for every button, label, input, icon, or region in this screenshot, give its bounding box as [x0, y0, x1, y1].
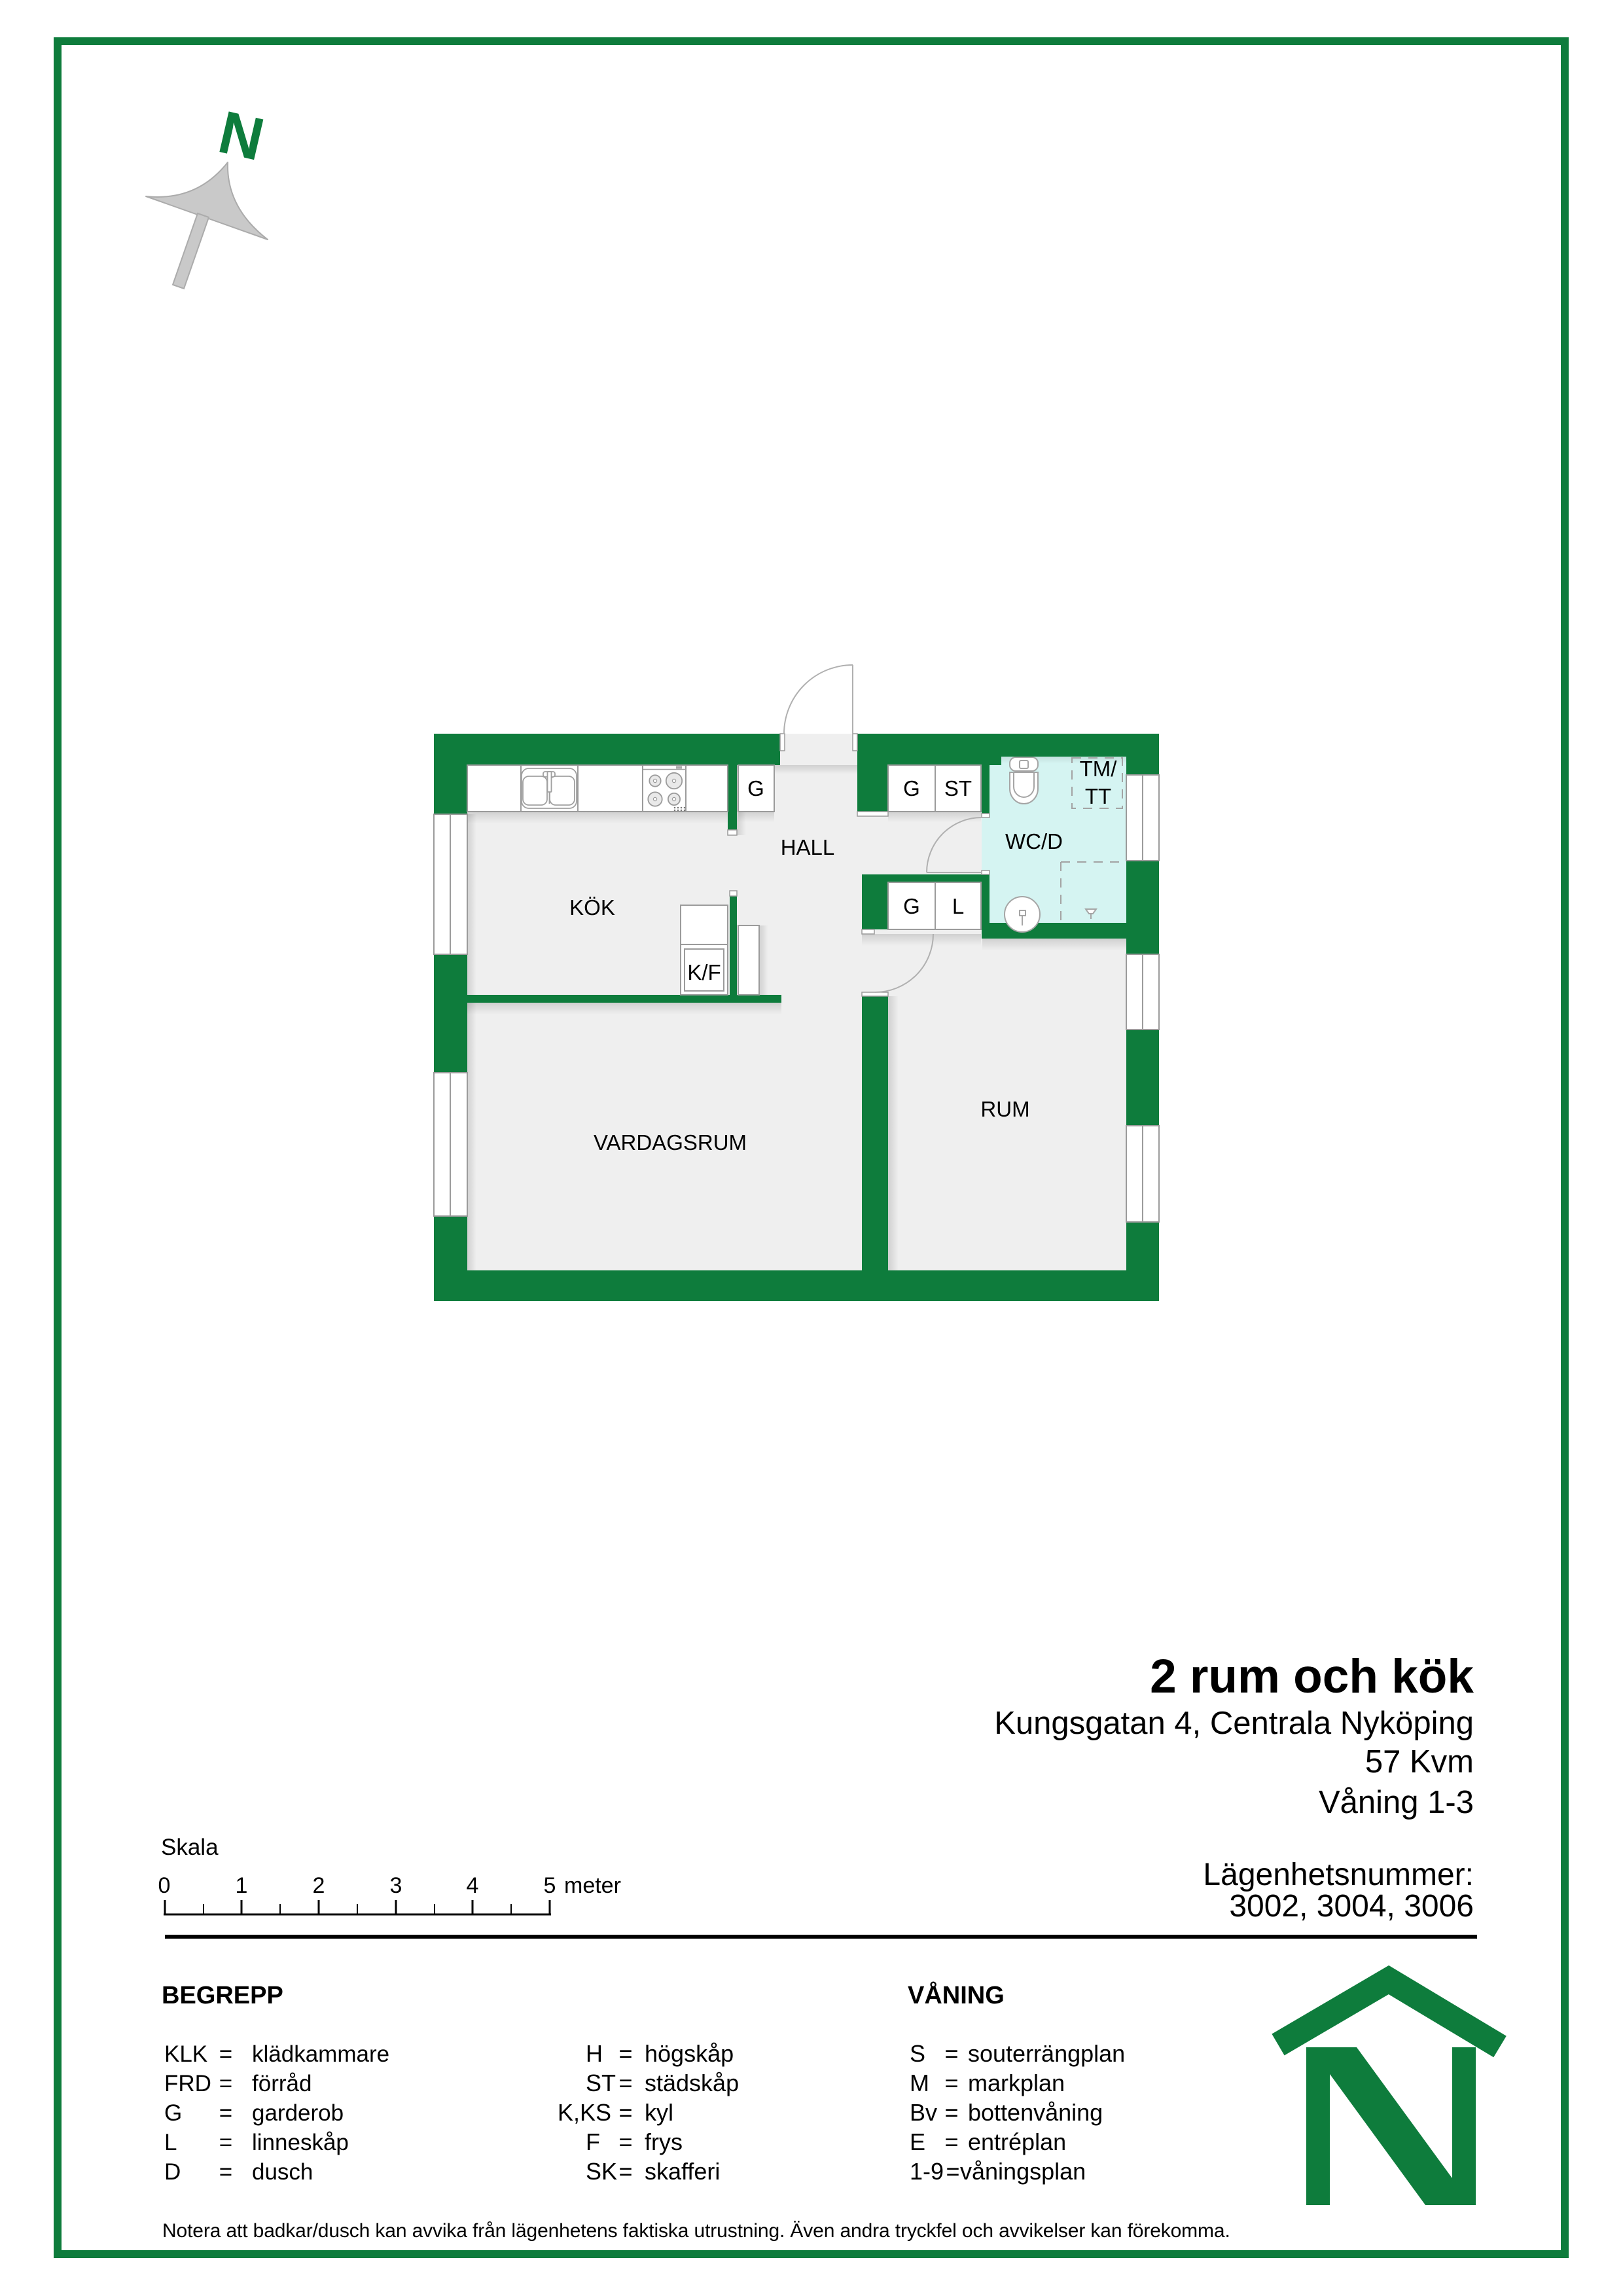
svg-text:=: =: [618, 2070, 632, 2096]
svg-text:Kungsgatan 4, Centrala Nyköpin: Kungsgatan 4, Centrala Nyköping: [994, 1706, 1474, 1741]
svg-text:D: D: [164, 2159, 181, 2185]
svg-text:våningsplan: våningsplan: [960, 2158, 1086, 2185]
svg-text:skafferi: skafferi: [645, 2158, 720, 2185]
svg-text:förråd: förråd: [252, 2071, 312, 2096]
svg-text:WC/D: WC/D: [1005, 829, 1063, 853]
svg-text:1-9: 1-9: [910, 2158, 944, 2185]
svg-text:=: =: [618, 2099, 632, 2126]
svg-text:garderob: garderob: [252, 2100, 344, 2126]
svg-text:=: =: [618, 2128, 632, 2155]
svg-text:ST: ST: [586, 2070, 616, 2096]
svg-text:KÖK: KÖK: [569, 895, 615, 920]
svg-text:S: S: [910, 2040, 925, 2067]
svg-text:G: G: [903, 894, 920, 918]
svg-text:0: 0: [158, 1873, 171, 1898]
svg-text:=: =: [219, 2130, 232, 2155]
svg-text:N: N: [213, 99, 270, 173]
svg-text:SK: SK: [586, 2158, 617, 2185]
svg-text:Våning 1-3: Våning 1-3: [1319, 1785, 1474, 1820]
svg-text:3: 3: [390, 1873, 402, 1898]
svg-text:RUM: RUM: [980, 1097, 1029, 1121]
svg-text:L: L: [164, 2130, 177, 2155]
svg-text:2: 2: [313, 1873, 325, 1898]
svg-text:K/F: K/F: [687, 960, 721, 984]
svg-text:3002, 3004, 3006: 3002, 3004, 3006: [1229, 1889, 1474, 1924]
svg-text:K,KS: K,KS: [558, 2099, 611, 2126]
svg-text:4: 4: [467, 1873, 479, 1898]
svg-text:Notera att badkar/dusch kan av: Notera att badkar/dusch kan avvika från …: [162, 2220, 1230, 2242]
svg-text:=: =: [944, 2070, 958, 2096]
svg-text:=: =: [946, 2158, 959, 2185]
svg-text:frys: frys: [645, 2128, 683, 2155]
svg-text:H: H: [586, 2040, 603, 2067]
svg-text:TT: TT: [1085, 784, 1111, 808]
svg-text:högskåp: högskåp: [645, 2040, 734, 2067]
svg-text:=: =: [944, 2040, 958, 2067]
svg-text:57 Kvm: 57 Kvm: [1365, 1744, 1474, 1780]
svg-text:=: =: [219, 2159, 232, 2185]
svg-text:klädkammare: klädkammare: [252, 2041, 389, 2067]
svg-text:M: M: [910, 2070, 929, 2096]
svg-text:Bv: Bv: [910, 2099, 937, 2126]
svg-text:HALL: HALL: [781, 835, 835, 859]
svg-text:kyl: kyl: [645, 2099, 673, 2126]
svg-text:dusch: dusch: [252, 2159, 313, 2185]
svg-text:F: F: [586, 2128, 600, 2155]
svg-text:entréplan: entréplan: [968, 2128, 1066, 2155]
svg-text:1: 1: [236, 1873, 248, 1898]
svg-text:=: =: [219, 2100, 232, 2126]
svg-text:bottenvåning: bottenvåning: [968, 2099, 1103, 2126]
svg-text:ST: ST: [944, 776, 972, 800]
svg-text:=: =: [944, 2128, 958, 2155]
svg-text:=: =: [219, 2071, 232, 2096]
svg-text:G: G: [903, 776, 920, 800]
svg-text:meter: meter: [564, 1873, 621, 1898]
svg-text:G: G: [164, 2100, 182, 2126]
svg-text:VÅNING: VÅNING: [908, 1981, 1005, 2009]
svg-text:=: =: [219, 2041, 232, 2067]
svg-text:2 rum och kök: 2 rum och kök: [1150, 1650, 1474, 1703]
svg-text:TM/: TM/: [1080, 757, 1118, 781]
svg-text:VARDAGSRUM: VARDAGSRUM: [594, 1130, 747, 1155]
svg-text:FRD: FRD: [164, 2071, 211, 2096]
svg-text:5: 5: [544, 1873, 556, 1898]
svg-text:=: =: [618, 2158, 632, 2185]
svg-text:=: =: [618, 2040, 632, 2067]
svg-text:Lägenhetsnummer:: Lägenhetsnummer:: [1203, 1857, 1474, 1892]
svg-text:=: =: [944, 2099, 958, 2126]
svg-text:souterrängplan: souterrängplan: [968, 2040, 1125, 2067]
svg-text:linneskåp: linneskåp: [252, 2130, 349, 2155]
svg-text:markplan: markplan: [968, 2070, 1065, 2096]
svg-text:E: E: [910, 2128, 925, 2155]
svg-text:KLK: KLK: [164, 2041, 207, 2067]
svg-text:G: G: [747, 776, 764, 800]
svg-text:L: L: [952, 894, 964, 918]
svg-text:Skala: Skala: [161, 1835, 219, 1860]
svg-text:städskåp: städskåp: [645, 2070, 739, 2096]
svg-text:BEGREPP: BEGREPP: [162, 1982, 283, 2009]
